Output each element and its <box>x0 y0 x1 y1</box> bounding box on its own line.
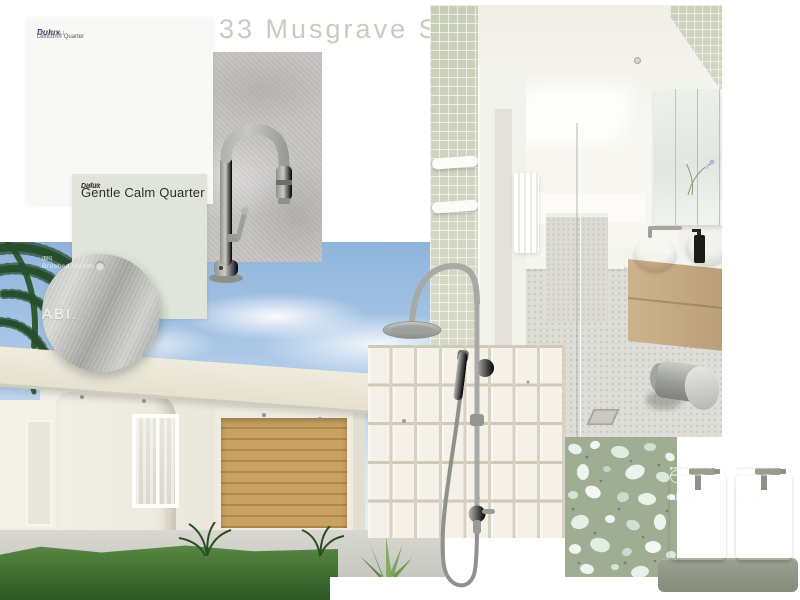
eave-downlight <box>80 395 84 399</box>
round-basin <box>634 237 676 271</box>
finish-name: Brushed Nickel <box>42 263 93 270</box>
moodboard-canvas: Dulux Lexicon® Quarter SW1 A018 1 33 Mus… <box>0 0 800 600</box>
disc-hole <box>95 261 105 271</box>
glass-screen-edge <box>576 123 578 437</box>
alive-product-type: NATURAL HAND & BODY LOTION <box>670 467 711 470</box>
vase-flowers <box>682 153 718 197</box>
shower-rail-image <box>378 256 504 600</box>
alive-bottle-wash: al.ive BODY EARTH COLLECTION GREEN PEPPE… <box>736 466 792 560</box>
hanging-towel <box>514 173 539 253</box>
timber-garage-door <box>215 408 353 534</box>
abi-logo: ABI. <box>42 306 78 323</box>
alive-product-type: NATURAL HAND & BODY WASH <box>736 467 775 470</box>
finish-code: (BN) <box>42 256 52 262</box>
alive-brand: al.ive <box>670 492 697 503</box>
swatch-code: SW1 A018 1 <box>37 31 65 37</box>
glass-screen-highlight <box>580 123 581 437</box>
board-title: 33 Musgrave St. <box>219 14 461 45</box>
ceiling-downlight <box>634 57 641 64</box>
grass-tuft <box>175 522 239 556</box>
alive-brand: al.ive <box>736 492 763 503</box>
lawn <box>0 542 338 600</box>
skylight <box>522 97 623 133</box>
eave-downlight <box>262 413 266 417</box>
alive-tray <box>658 558 798 592</box>
alive-variant: GREEN PEPPER & LOTUS <box>670 473 705 477</box>
alive-bottle-lotion: al.ive BODY EARTH COLLECTION GREEN PEPPE… <box>670 466 726 560</box>
house-front-door <box>26 420 52 526</box>
eave-downlight <box>142 399 146 403</box>
wall-tap-spout <box>648 228 652 238</box>
eave-downlight <box>318 417 322 421</box>
grass-tuft <box>292 526 348 556</box>
timber-vanity <box>628 259 722 351</box>
alive-variant: GREEN PEPPER & LOTUS <box>736 473 771 477</box>
alive-body-duo-image: al.ive BODY EARTH COLLECTION GREEN PEPPE… <box>656 444 800 596</box>
wall-mounted-tap <box>648 226 682 230</box>
house-window <box>132 414 179 508</box>
abi-finish-disc: ABI. Brushed Nickel (BN) <box>42 254 160 372</box>
house-number-33: 33 <box>322 162 421 246</box>
swatch-name: Gentle Calm Quarter <box>81 185 205 200</box>
soap-bottle <box>694 235 705 263</box>
soap-bottle-spout <box>692 229 699 232</box>
kitchen-mixer-tap-image <box>196 110 300 290</box>
towel-hook-image <box>644 350 726 418</box>
